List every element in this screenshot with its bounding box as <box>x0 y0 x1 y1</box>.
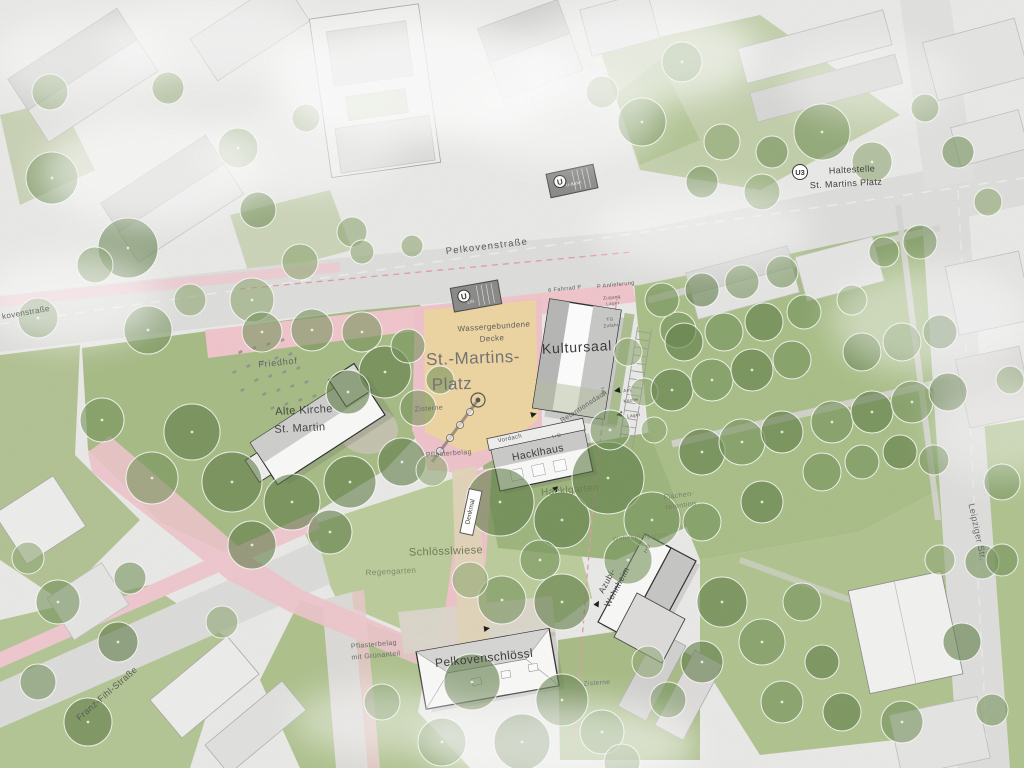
paper-texture <box>0 0 1024 768</box>
map-canvas: U U <box>0 0 1024 768</box>
site-plan-map: U U <box>0 0 1024 768</box>
